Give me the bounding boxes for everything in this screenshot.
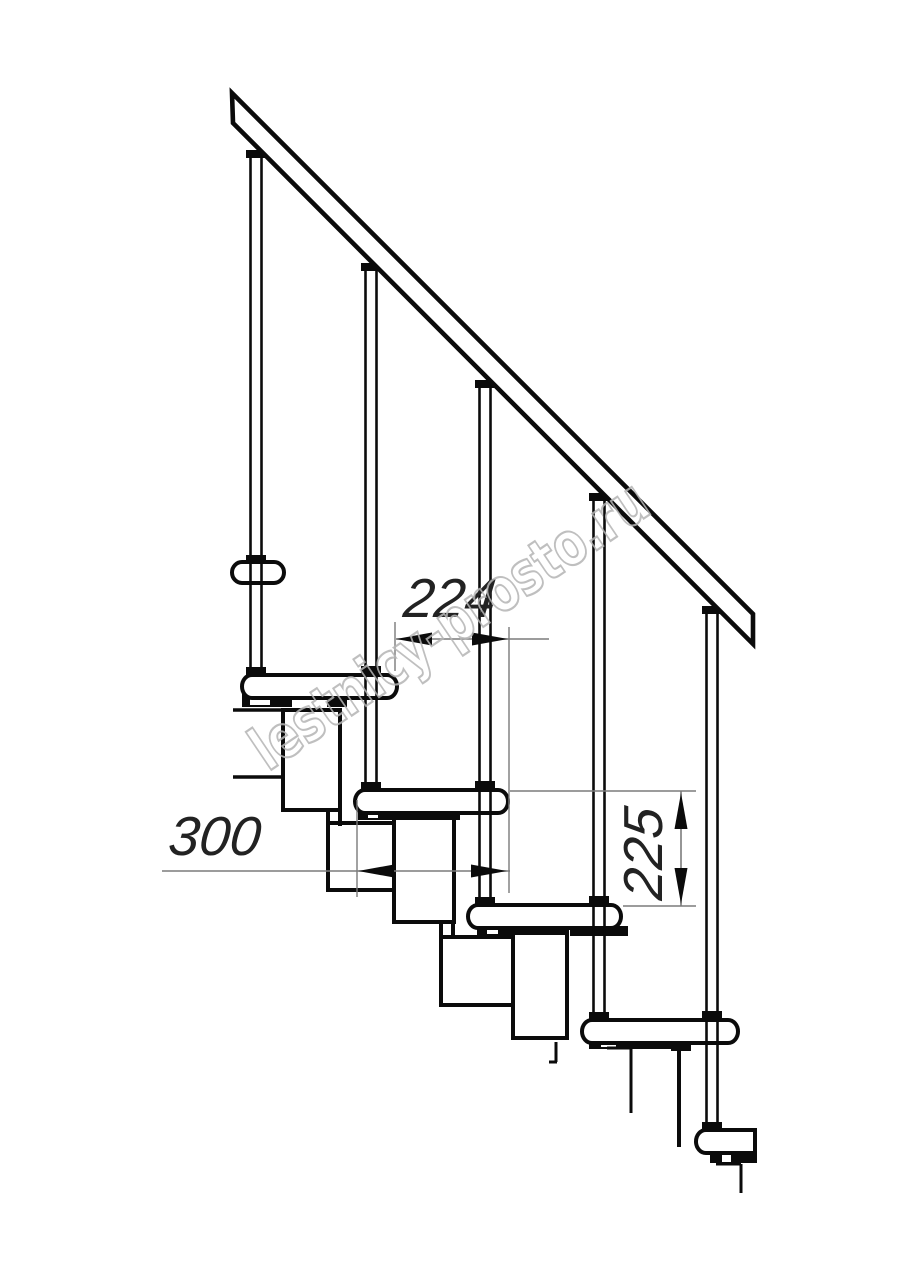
drawing-svg: 224300225lestnicy-prosto.ru <box>0 0 914 1280</box>
baluster-collar <box>589 896 609 905</box>
dimension-value: 225 <box>612 804 674 904</box>
staircase-technical-drawing: 224300225lestnicy-prosto.ru <box>0 0 914 1280</box>
tread-5 <box>696 1130 755 1153</box>
baluster-collar <box>475 781 495 790</box>
tread-4 <box>582 1020 738 1043</box>
tread-2 <box>355 790 508 813</box>
baluster-collar <box>361 782 381 790</box>
support-module-3 <box>394 818 454 922</box>
baluster-collar <box>246 555 266 562</box>
dimension-value: 300 <box>166 805 265 867</box>
baluster-collar <box>246 667 266 675</box>
support-module-2 <box>328 823 400 890</box>
support-module-4 <box>441 937 520 1005</box>
tread-3 <box>468 905 621 928</box>
baluster-collar <box>702 1122 722 1130</box>
bracket-notch <box>722 1155 731 1162</box>
baluster-collar <box>475 897 495 905</box>
upper-rail-crossbar <box>232 562 284 583</box>
support-module-5 <box>513 927 567 1038</box>
baluster-collar <box>702 1011 722 1020</box>
baluster-collar <box>589 1012 609 1020</box>
